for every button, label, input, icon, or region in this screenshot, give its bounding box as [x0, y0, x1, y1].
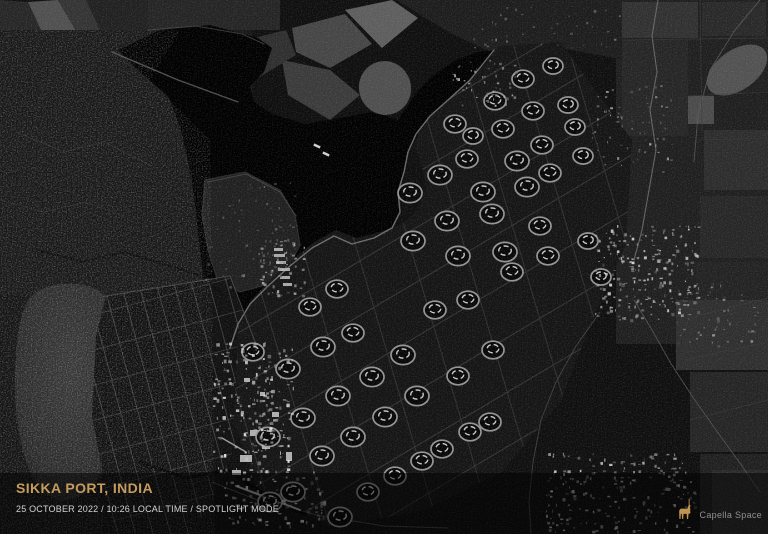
image-subtitle: 25 OCTOBER 2022 / 10:26 LOCAL TIME / SPO…: [16, 504, 279, 514]
capella-logo-text: Capella Space: [700, 510, 762, 524]
capella-logo: Capella Space: [676, 498, 762, 524]
caption-overlay: SIKKA PORT, INDIA 25 OCTOBER 2022 / 10:2…: [0, 473, 768, 534]
sar-satellite-image: [0, 0, 768, 534]
image-title: SIKKA PORT, INDIA: [16, 480, 153, 496]
capella-goat-icon: [676, 498, 696, 524]
sar-screenshot: SIKKA PORT, INDIA 25 OCTOBER 2022 / 10:2…: [0, 0, 768, 534]
